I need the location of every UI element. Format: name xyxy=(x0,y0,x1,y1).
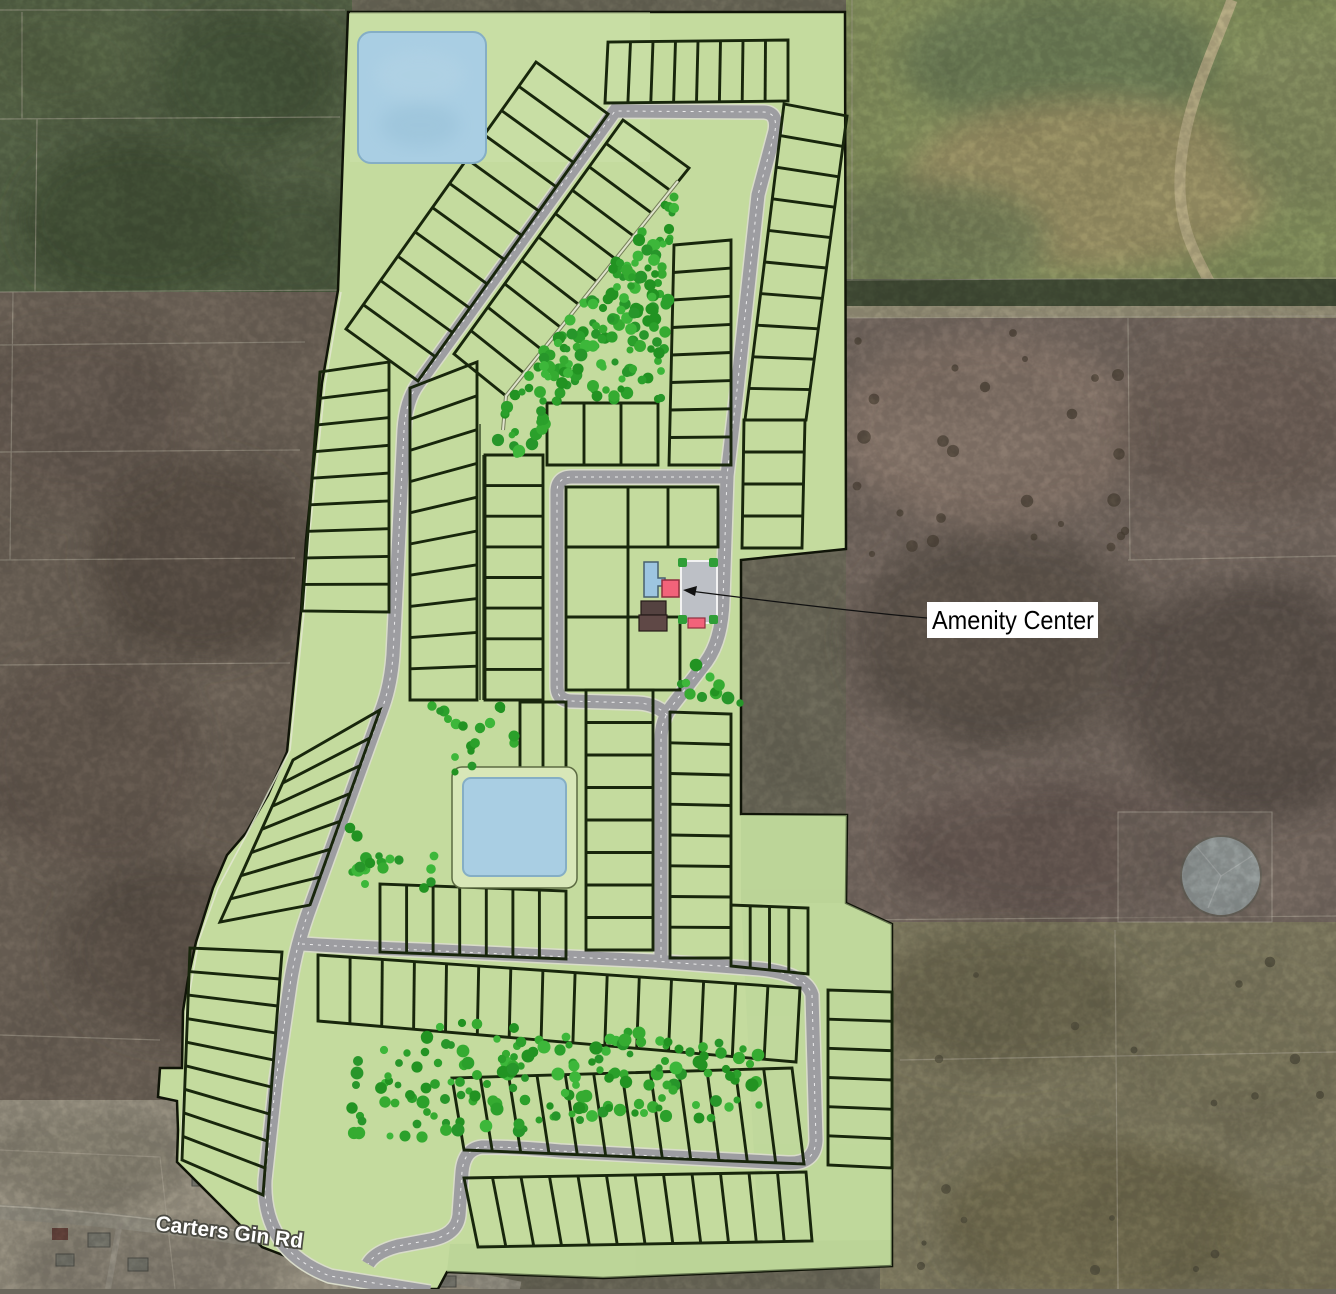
svg-text:Amenity Center: Amenity Center xyxy=(932,605,1094,635)
